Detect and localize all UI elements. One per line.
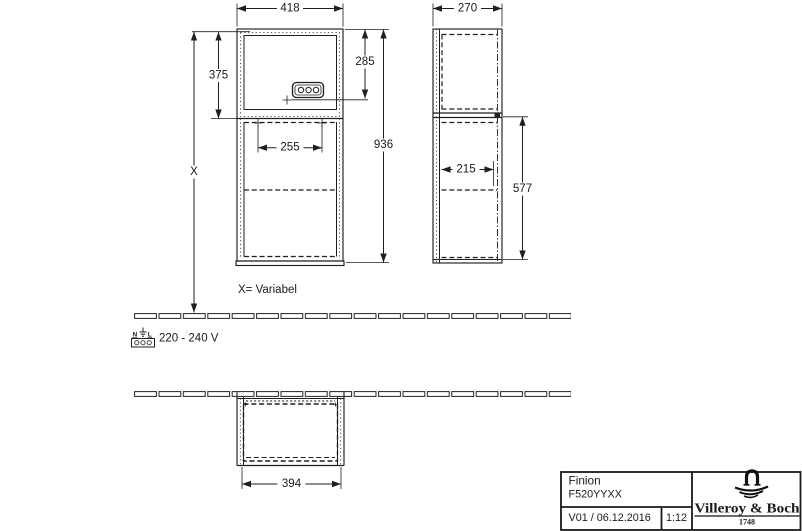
side-view: 270 215 577 [433,3,536,264]
socket-center-marker [283,96,292,105]
dim-side-lower-height: 577 [513,183,532,195]
variable-note: X= Variabel [238,284,297,296]
dim-front-socket-height: 285 [355,56,374,68]
dim-front-width: 418 [280,3,299,15]
product-name: Finion [569,474,601,488]
brand-year: 1748 [739,518,755,527]
version-date: V01 / 06.12.2016 [569,512,651,524]
dim-side-depth: 270 [458,3,477,15]
brand-name: Villeroy & Boch [695,501,801,516]
plan-view: 394 [237,392,344,491]
dim-plan-width: 394 [282,478,302,490]
drawing-scale: 1:12 [666,512,687,524]
power-connection-icon: N L [132,328,155,348]
front-view: 418 X 375 285 936 255 [187,3,397,313]
wall-section-upper [134,313,571,319]
dim-front-upper-height: 375 [209,70,228,82]
dim-side-inner-depth: 215 [456,164,475,176]
shelf-end-marker [495,113,501,119]
dim-front-variable: X [190,166,198,178]
voltage-note: 220 - 240 V [159,333,219,345]
wall-section-lower [134,391,571,397]
drawing-sheet: 418 X 375 285 936 255 [0,0,802,531]
technical-drawing: 418 X 375 285 936 255 [0,0,802,531]
dim-front-total-height: 936 [374,139,393,151]
title-block: Finion F520YYXX V01 / 06.12.2016 1:12 Vi… [561,471,801,530]
dim-front-inner-width: 255 [280,142,299,154]
earth-symbol-icon [140,328,147,337]
article-code: F520YYXX [569,489,622,501]
power-socket-icon [293,83,324,98]
